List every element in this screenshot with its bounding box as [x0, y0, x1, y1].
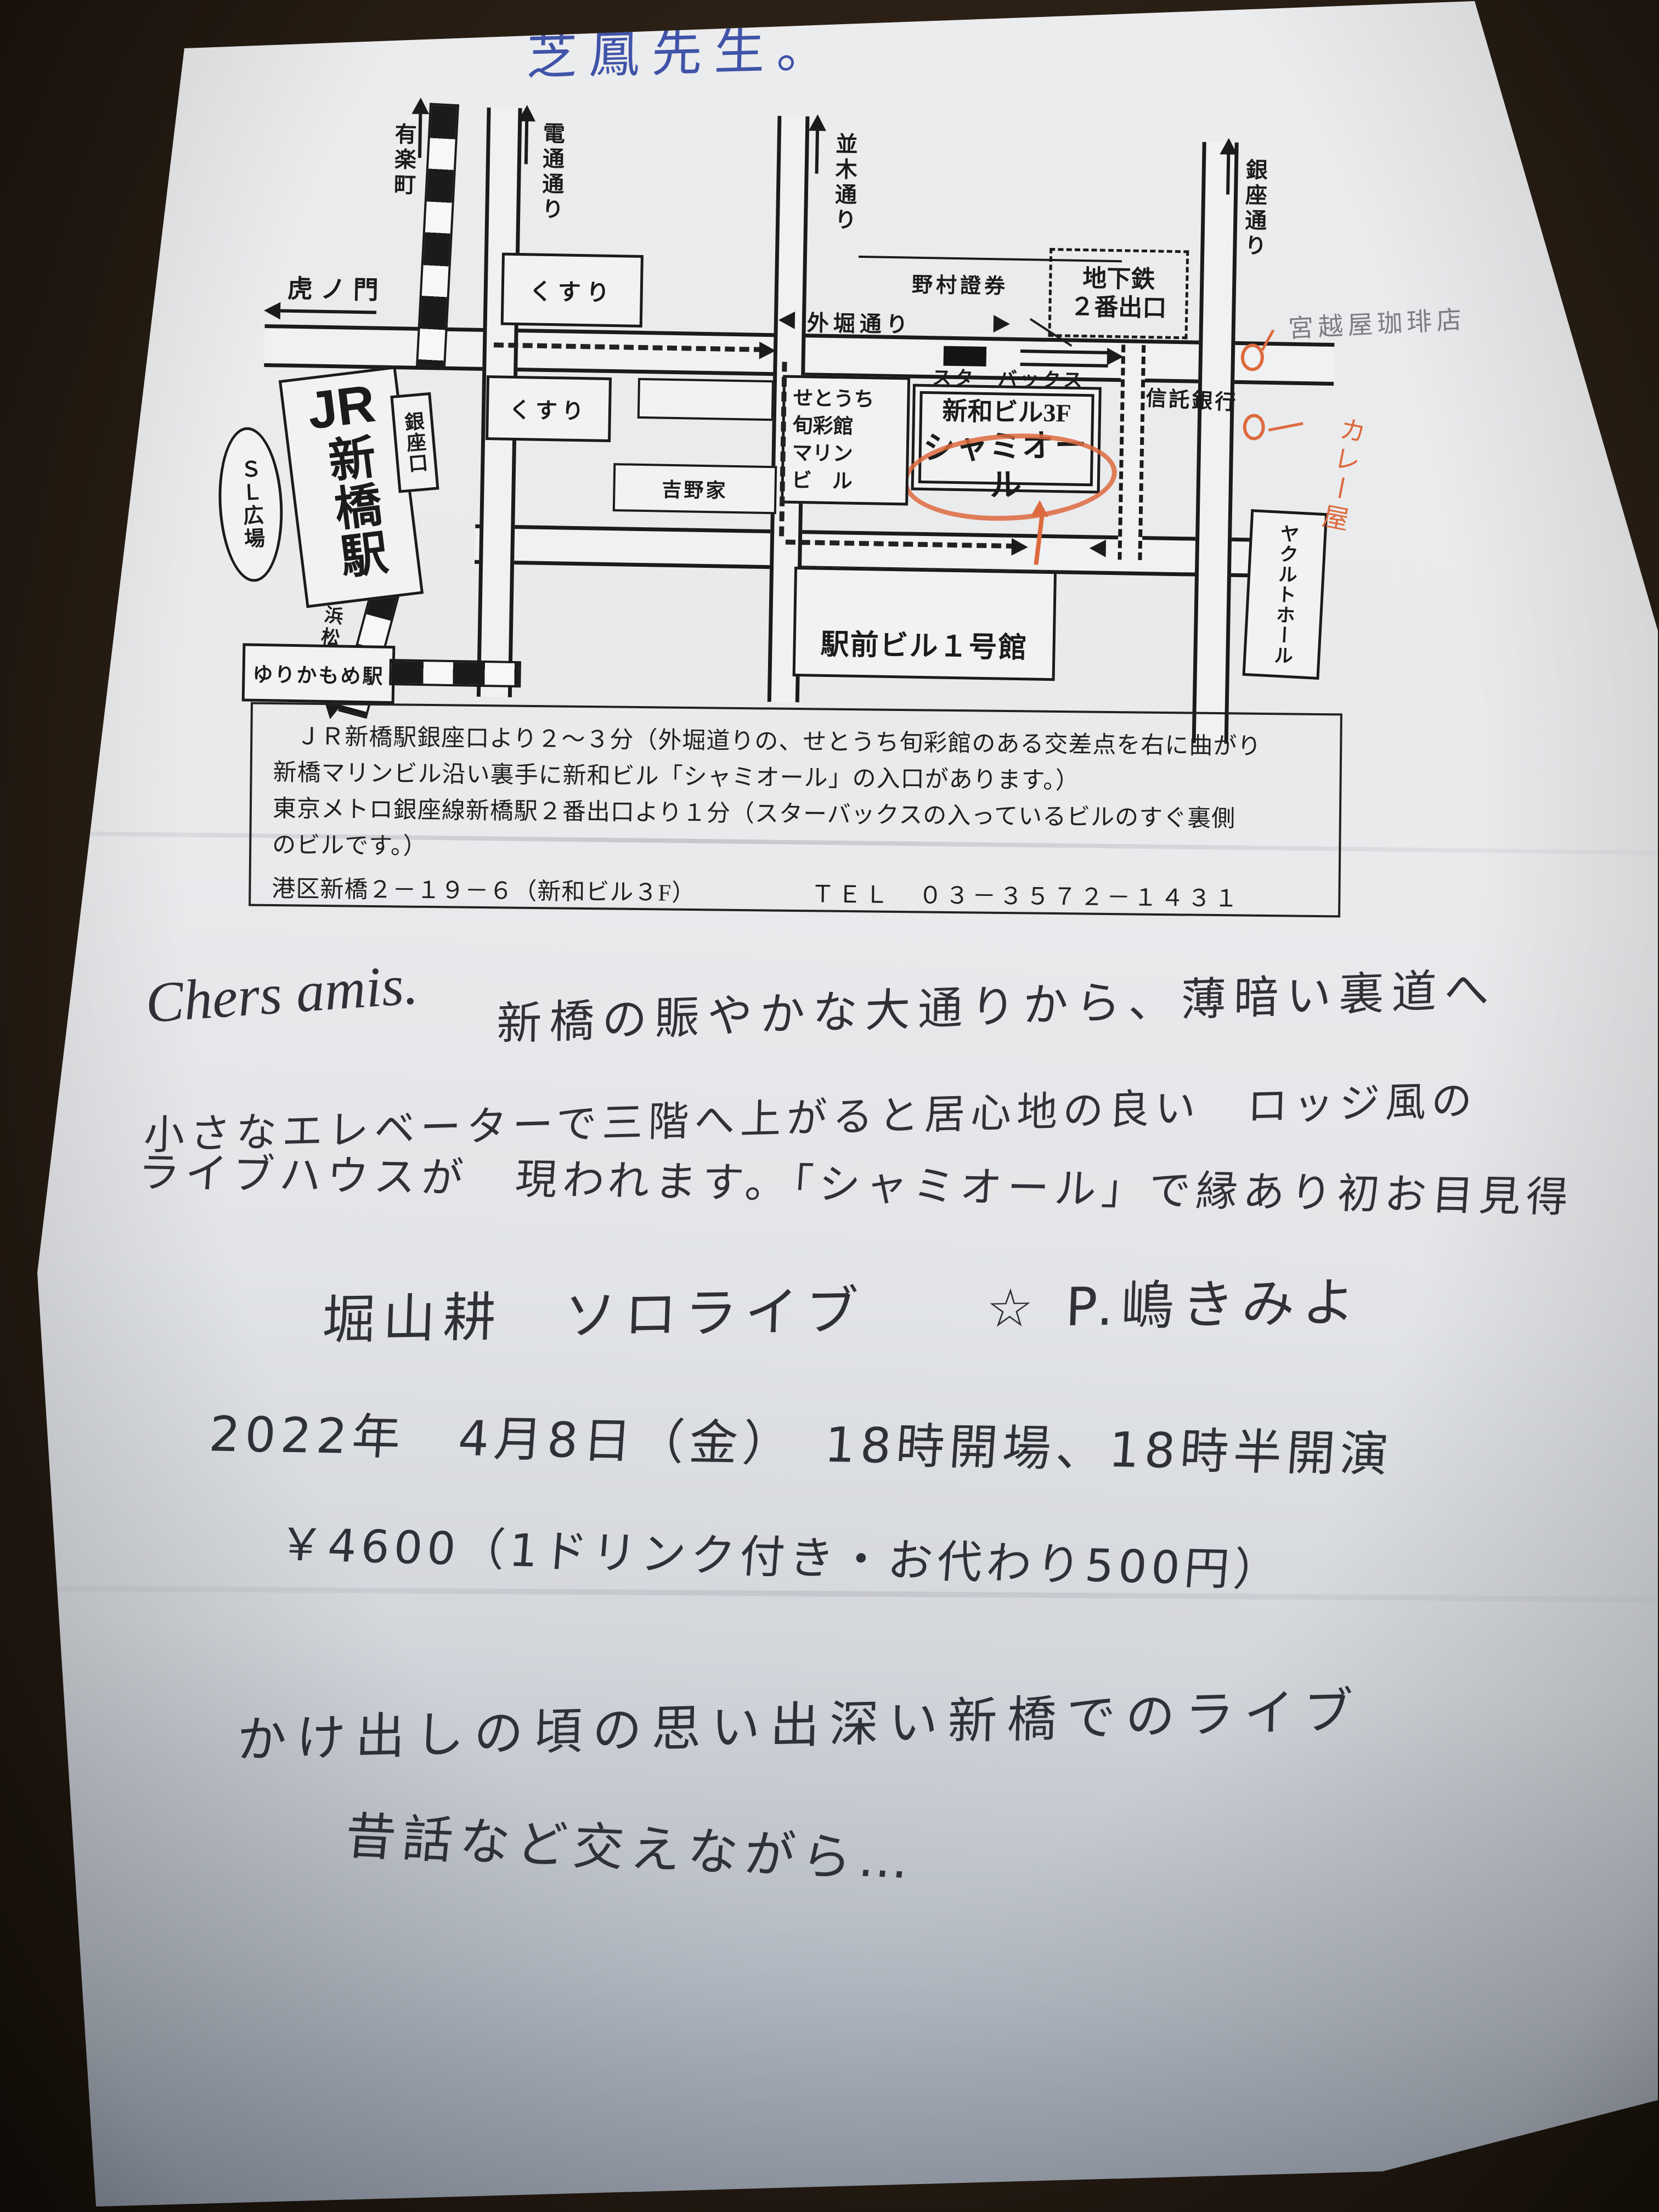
venue-address: 港区新橋２－１９－６（新和ビル３F） — [272, 871, 696, 912]
paper-sheet: 芝鳳先生。 JR 新橋駅 銀座口 ＳＬ広場 有楽町 虎ノ門 浜松町 — [0, 0, 1659, 2212]
toranomon-label: 虎ノ門 — [287, 269, 386, 307]
road-side-street — [1118, 345, 1145, 560]
ginza-dori-label: 銀座通り — [1237, 158, 1271, 259]
ginza-exit-box: 銀座口 — [390, 392, 439, 493]
yurakucho-arrow-line — [418, 114, 422, 158]
toranomon-arrow-line — [280, 309, 376, 314]
setouchi-line-4: ビ ル — [791, 467, 853, 495]
letter-line-3: ライブハウスが 現われます。「シャミオール」で縁あり初お目見得 — [136, 1138, 1576, 1224]
blue-dedication-note: 芝鳳先生。 — [526, 8, 840, 89]
ekimae-building-box: 駅前ビル１号館 — [793, 567, 1057, 681]
venue-phone: ＴＥＬ ０３－３５７２－１４３１ — [811, 877, 1242, 917]
walk-route-upper-arrow-icon — [759, 342, 776, 360]
shinwa-building-label: 新和ビル3F — [942, 396, 1071, 429]
road-ginza-dori — [1192, 142, 1239, 744]
coffee-shop-note: 宮越屋珈琲店 — [1288, 300, 1467, 345]
letter-closing-2: 昔話など交えながら… — [342, 1796, 919, 1893]
kusuri-box-1: くすり — [501, 253, 644, 328]
namiki-dori-label: 並木通り — [827, 132, 861, 234]
sotobori-dori-label: 外堀通り — [806, 305, 912, 338]
fold-crease-lower — [0, 1585, 1659, 1602]
yakult-hall-box: ヤクルトホール — [1242, 509, 1328, 680]
dentsu-arrow-line — [524, 120, 528, 164]
access-info-box: ＪＲ新橋駅銀座口より２～３分（外堀道りの、せとうち旬彩館のある交差点を右に曲がり… — [249, 702, 1342, 918]
curry-shop-note: カレー屋 — [1311, 413, 1372, 537]
letter-line-1: 新橋の賑やかな大通りから、薄暗い裏道へ — [496, 952, 1498, 1053]
orange-tick-2 — [1268, 422, 1304, 431]
subway-exit-line2: ２番出口 — [1070, 293, 1167, 323]
trust-bank-label: 信託銀行 — [1145, 381, 1239, 416]
namiki-arrow-icon — [809, 114, 827, 131]
setouchi-line-1: せとうち — [793, 385, 874, 414]
jr-label: JR — [304, 376, 378, 439]
subway-exit-box: 地下鉄 ２番出口 — [1048, 248, 1189, 339]
yoshinoya-box: 吉野家 — [613, 463, 777, 514]
namiki-arrow-line — [815, 129, 819, 173]
letter-price-line: ￥4600（1ドリンク付き・お代わり500円） — [276, 1508, 1286, 1599]
yurikamome-line — [389, 659, 521, 687]
access-map: JR 新橋駅 銀座口 ＳＬ広場 有楽町 虎ノ門 浜松町 ゆりかもめ駅 電通通り … — [225, 93, 1421, 756]
yurakucho-label: 有楽町 — [387, 122, 420, 199]
dentsu-dori-label: 電通通り — [534, 122, 568, 223]
route-arrow-icon — [1107, 348, 1124, 366]
unlabeled-building-box — [637, 378, 774, 421]
ginza-dori-arrow-icon — [1220, 138, 1238, 155]
toranomon-arrow-icon — [264, 302, 281, 320]
yurikamome-station-box: ゆりかもめ駅 — [242, 643, 396, 704]
photo-of-letter: { "photo": { "background_color": "#2a1f1… — [0, 0, 1659, 2212]
yurakucho-arrow-icon — [411, 98, 430, 115]
setouchi-building-box: せとうち 旬彩館 マリン ビ ル — [781, 375, 910, 505]
orange-circle-mark-2 — [1243, 414, 1265, 441]
route-end-arrow-icon — [1089, 539, 1106, 557]
letter-artist-line: 堀山耕 ソロライブ ☆ P.嶋きみよ — [321, 1259, 1364, 1353]
letter-salutation: Chers amis. — [143, 952, 420, 1036]
sotobori-arrow-right-icon — [994, 315, 1011, 333]
nomura-label: 野村證券 — [912, 268, 1009, 300]
dentsu-arrow-icon — [518, 105, 536, 122]
setouchi-line-2: 旬彩館 — [792, 412, 854, 441]
letter-closing-1: かけ出しの頃の思い出深い新橋でのライブ — [236, 1671, 1364, 1771]
walk-route-lower-arrow-icon — [1012, 538, 1029, 556]
kusuri-box-2: くすり — [486, 375, 612, 442]
subway-exit-line1: 地下鉄 — [1082, 264, 1155, 294]
chamiol-orange-arrow-icon — [1031, 500, 1049, 517]
letter-date-line: 2022年 4月8日（金） 18時開場、18時半開演 — [207, 1395, 1396, 1486]
sl-square-ellipse: ＳＬ広場 — [215, 426, 287, 584]
sotobori-arrow-left-icon — [778, 311, 795, 329]
setouchi-line-3: マリン — [792, 439, 853, 468]
shimbashi-station-label: 新橋駅 — [320, 432, 387, 582]
